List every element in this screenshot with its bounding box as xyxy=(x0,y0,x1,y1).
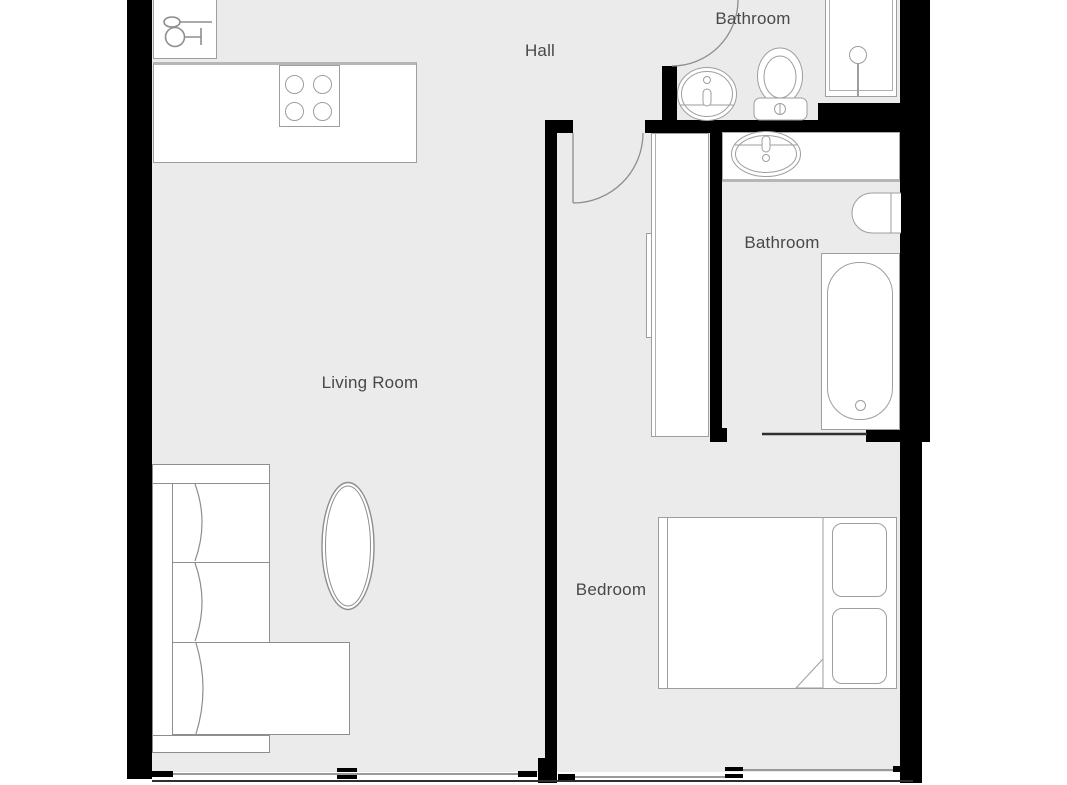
wall-living-bedroom-divider xyxy=(545,132,557,758)
burner-icon xyxy=(285,75,304,94)
wall-bathroom-top-left xyxy=(662,66,677,122)
shower xyxy=(825,0,897,97)
room-label-living-room: Living Room xyxy=(322,373,419,393)
dishwasher xyxy=(153,0,217,59)
wall-right-exterior-bottom xyxy=(900,442,922,783)
room-label-bathroom-top: Bathroom xyxy=(715,9,790,29)
sofa-arm-line xyxy=(153,735,269,736)
bedroom-window xyxy=(575,776,725,778)
window-mullion xyxy=(725,774,743,778)
burner-icon xyxy=(313,102,332,121)
wall-right-exterior-top xyxy=(900,0,930,442)
room-label-bedroom: Bedroom xyxy=(576,580,646,600)
bed-foot-line xyxy=(667,518,668,688)
sofa-cushion-divider xyxy=(172,562,270,563)
shower-tray xyxy=(829,0,893,91)
wardrobe-door-line xyxy=(655,134,656,436)
window-cap xyxy=(518,771,537,777)
bathtub-basin xyxy=(827,262,893,420)
bathtub xyxy=(821,253,900,430)
pillow xyxy=(832,523,887,597)
cooktop xyxy=(279,65,340,127)
window-cap xyxy=(893,766,903,772)
vanity-counter xyxy=(722,132,900,182)
sofa-chaise xyxy=(172,642,350,735)
drain-icon xyxy=(855,400,866,411)
wardrobe-handle xyxy=(646,233,652,338)
wardrobe xyxy=(651,133,709,437)
window-mullion xyxy=(337,768,357,772)
floor-plan: Hall Bathroom Bathroom Living Room Bedro… xyxy=(0,0,1067,785)
bedroom-window xyxy=(743,769,896,771)
burner-icon xyxy=(313,75,332,94)
pillow xyxy=(832,608,887,684)
wall-left-exterior xyxy=(127,0,152,779)
wall-bathroom-side-left xyxy=(710,132,722,429)
window-mullion xyxy=(725,767,743,771)
window-mullion xyxy=(337,775,357,779)
wall-bathroom-side-left-foot xyxy=(710,428,727,442)
sofa-arm-line xyxy=(153,483,269,484)
wall-bathrooms-divider-thick xyxy=(818,103,930,133)
window-cap xyxy=(152,771,173,777)
window-wall-outer-line xyxy=(152,780,913,782)
wall-bathroom-bedroom-stub xyxy=(866,428,903,442)
burner-icon xyxy=(285,102,304,121)
room-label-bathroom-side: Bathroom xyxy=(744,233,819,253)
room-label-hall: Hall xyxy=(525,41,555,61)
